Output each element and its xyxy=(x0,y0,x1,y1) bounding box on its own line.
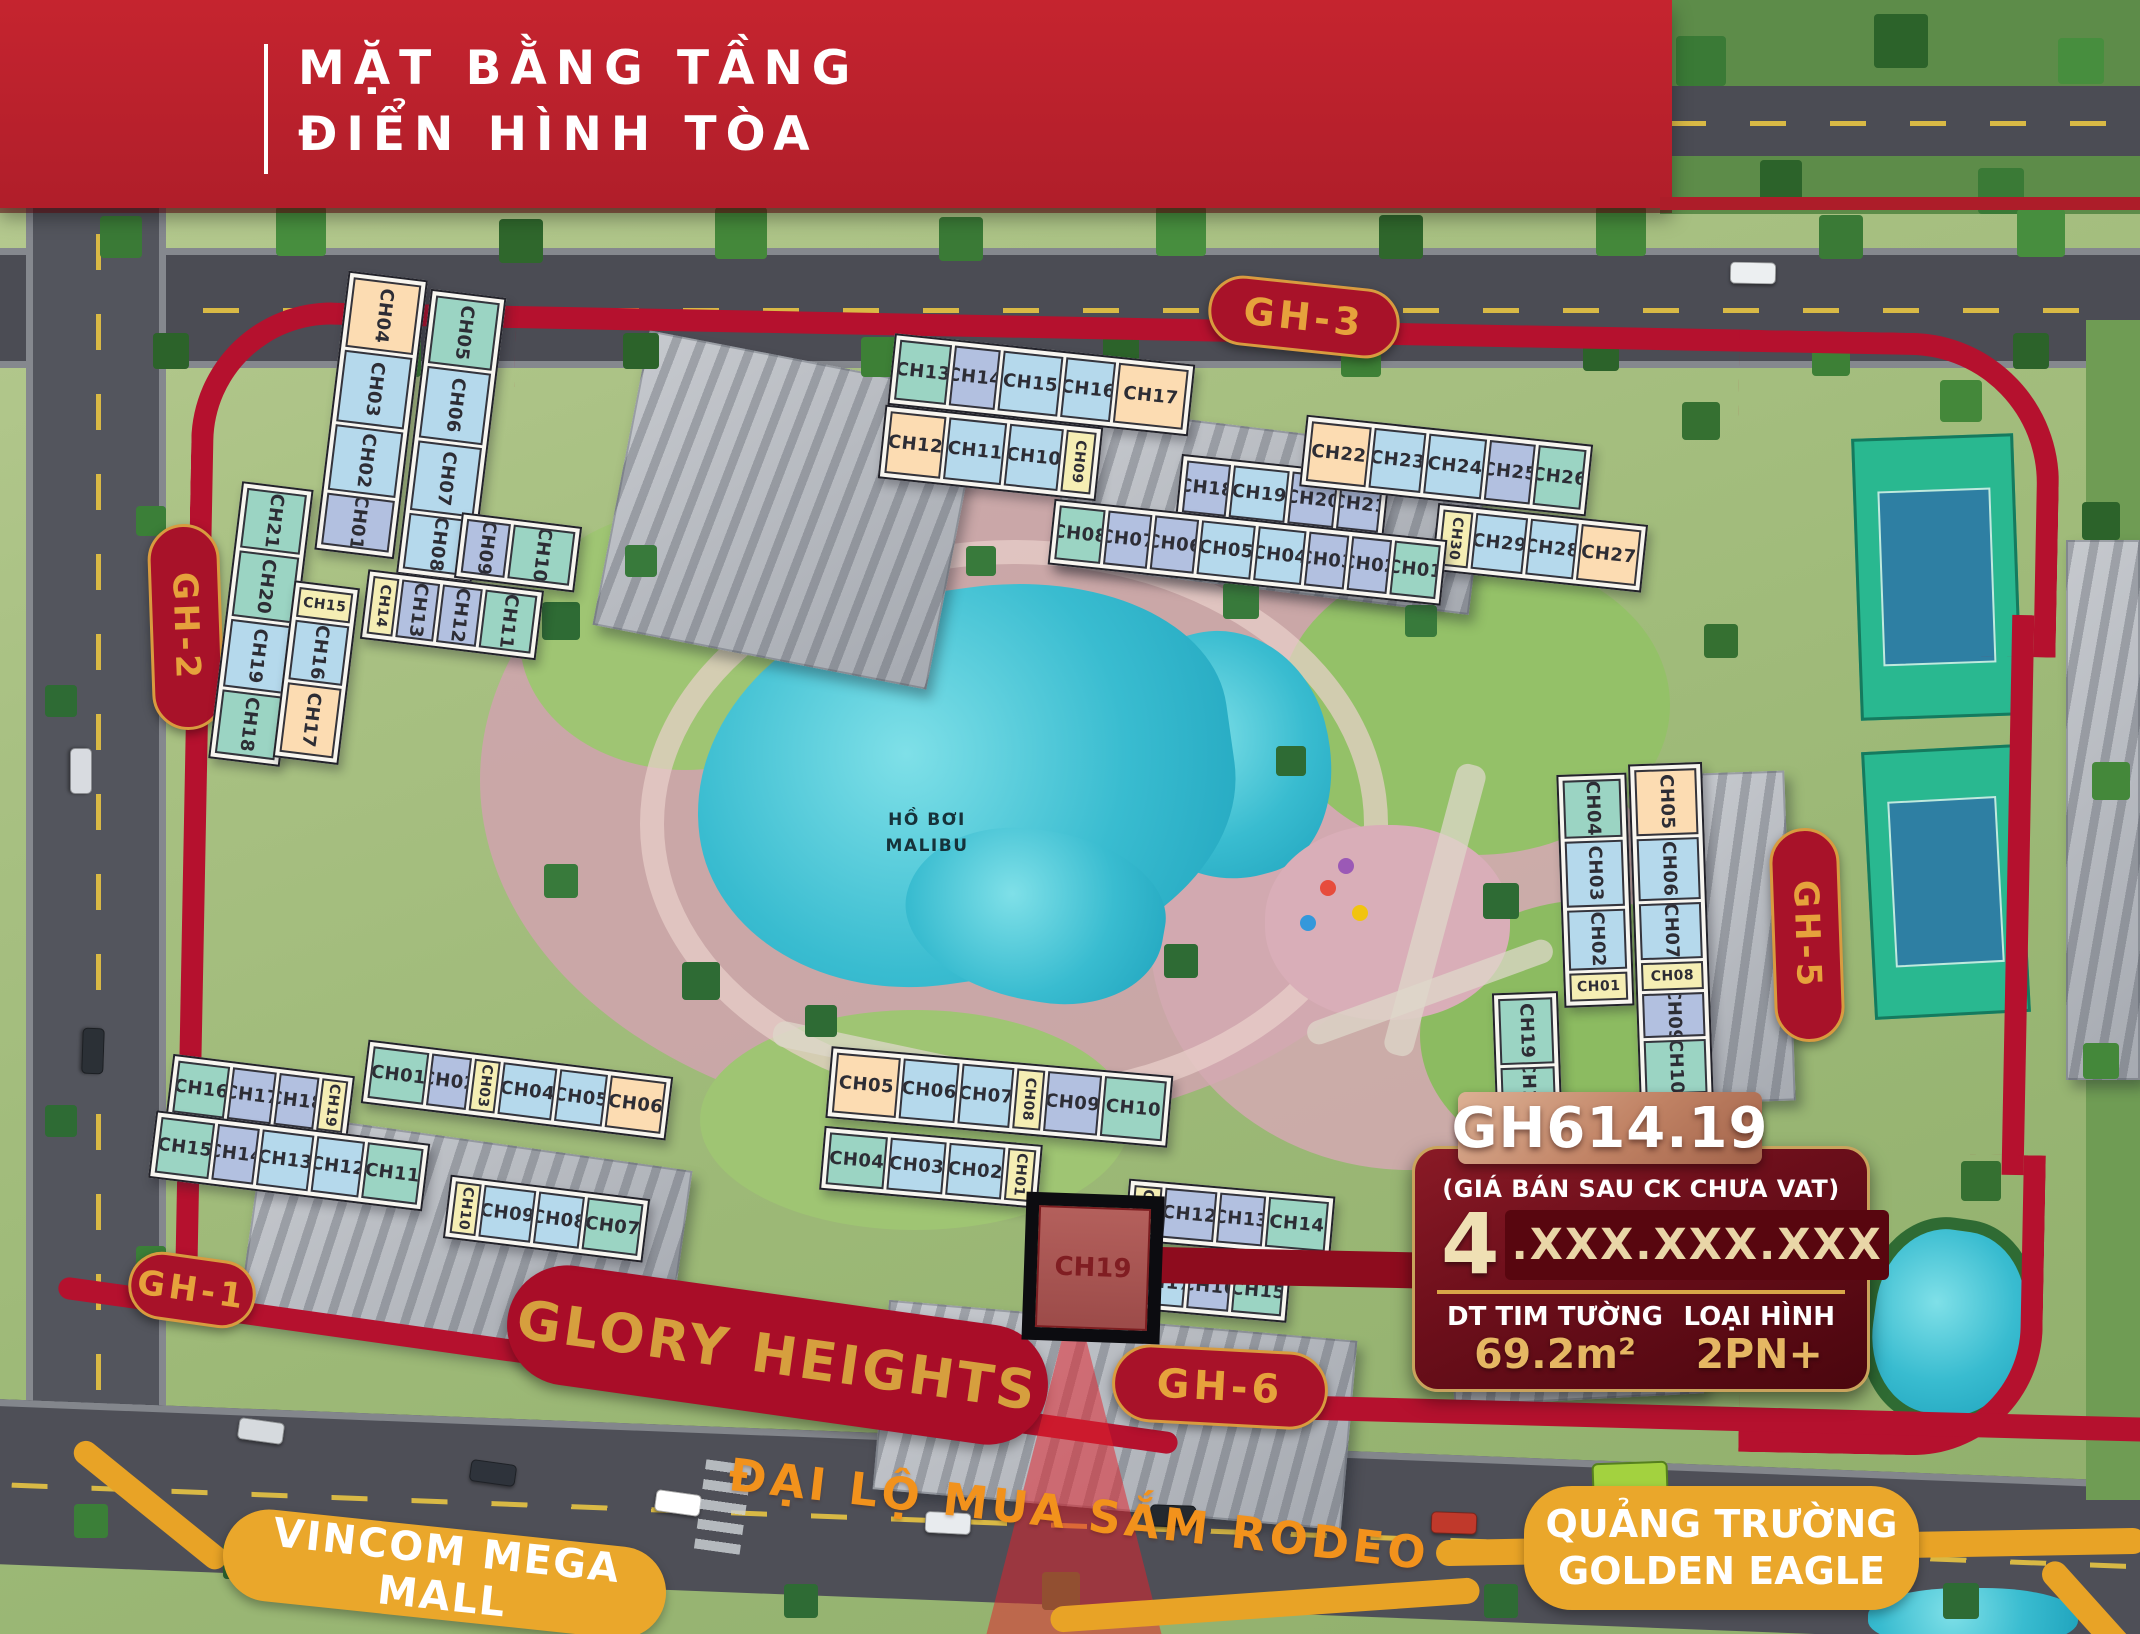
area-spec: DT TIM TƯỜNG 69.2m² xyxy=(1447,1302,1663,1377)
unit-CH23[interactable]: CH23 xyxy=(1368,428,1426,493)
unit-CH09[interactable]: CH09 xyxy=(1043,1071,1102,1135)
unit-CH08[interactable]: CH08 xyxy=(1054,505,1105,564)
unit-CH01[interactable]: CH01 xyxy=(367,1046,429,1104)
building-gh2: CH04CH03CH02CH01 CH05CH06CH07CH08 CH09CH… xyxy=(167,252,657,821)
unit-CH17[interactable]: CH17 xyxy=(279,682,341,758)
unit-CH12[interactable]: CH12 xyxy=(311,1136,365,1197)
unit-CH13[interactable]: CH13 xyxy=(395,579,440,641)
unit-CH06[interactable]: CH06 xyxy=(899,1058,960,1123)
route-corner-tr xyxy=(1734,330,2062,658)
unit-CH07[interactable]: CH07 xyxy=(1103,511,1152,569)
unit-CH10[interactable]: CH10 xyxy=(1644,1039,1708,1095)
unit-CH12[interactable]: CH12 xyxy=(884,411,946,479)
unit-CH18[interactable]: CH18 xyxy=(1182,460,1231,516)
unit-CH12[interactable]: CH12 xyxy=(436,584,483,646)
unit-CH10[interactable]: CH10 xyxy=(1100,1076,1167,1141)
unit-CH04[interactable]: CH04 xyxy=(345,277,421,355)
unit-CH28[interactable]: CH28 xyxy=(1525,519,1579,580)
unit-CH04[interactable]: CH04 xyxy=(1563,779,1623,839)
unit-CH08[interactable]: CH08 xyxy=(1012,1068,1045,1130)
unit-CH04[interactable]: CH04 xyxy=(826,1132,888,1189)
unit-CH01[interactable]: CH01 xyxy=(1389,541,1440,600)
banner-edge-strip xyxy=(1660,197,2140,210)
unit-CH16[interactable]: CH16 xyxy=(172,1061,230,1119)
unit-CH06[interactable]: CH06 xyxy=(1150,515,1199,573)
route-top xyxy=(470,305,1750,352)
unit-CH13[interactable]: CH13 xyxy=(256,1129,314,1191)
unit-CH05[interactable]: CH05 xyxy=(832,1053,901,1118)
unit-CH04[interactable]: CH04 xyxy=(1253,526,1306,585)
unit-CH02[interactable]: CH02 xyxy=(1567,909,1627,971)
unit-CH02[interactable]: CH02 xyxy=(328,424,404,498)
unit-CH19[interactable]: CH19 xyxy=(316,1078,348,1133)
unit-CH14[interactable]: CH14 xyxy=(949,346,1001,410)
type-spec: LOẠI HÌNH 2PN+ xyxy=(1683,1302,1835,1377)
unit-CH16[interactable]: CH16 xyxy=(288,620,349,686)
unit-CH29[interactable]: CH29 xyxy=(1471,513,1529,574)
unit-CH03[interactable]: CH03 xyxy=(1565,840,1625,908)
unit-CH16[interactable]: CH16 xyxy=(1060,357,1116,422)
unit-CH10[interactable]: CH10 xyxy=(507,525,575,586)
price-row: 4 .XXX.XXX.XXX xyxy=(1433,1209,1849,1280)
unit-CH12[interactable]: CH12 xyxy=(1161,1188,1217,1242)
title-divider xyxy=(264,44,268,174)
unit-CH07[interactable]: CH07 xyxy=(410,440,482,517)
price-lead-digit: 4 xyxy=(1441,1209,1499,1280)
unit-CH27[interactable]: CH27 xyxy=(1576,524,1642,586)
unit-CH10[interactable]: CH10 xyxy=(450,1181,482,1236)
unit-CH17[interactable]: CH17 xyxy=(1113,363,1189,430)
unit-CH03[interactable]: CH03 xyxy=(469,1059,501,1114)
highlighted-unit-ch19[interactable]: CH19 xyxy=(1021,1192,1164,1345)
price-card: (GIÁ BÁN SAU CK CHƯA VAT) 4 .XXX.XXX.XXX… xyxy=(1412,1146,1870,1392)
unit-CH25[interactable]: CH25 xyxy=(1484,440,1536,504)
page-title: MẶT BẰNG TẦNG ĐIỂN HÌNH TÒA xyxy=(298,36,859,168)
unit-CH06[interactable]: CH06 xyxy=(605,1075,667,1133)
title-banner: MẶT BẰNG TẦNG ĐIỂN HÌNH TÒA xyxy=(0,0,1672,208)
unit-CH19[interactable]: CH19 xyxy=(223,619,291,694)
unit-CH22[interactable]: CH22 xyxy=(1306,421,1372,487)
unit-CH03[interactable]: CH03 xyxy=(1304,532,1349,590)
pool-label: HỒ BƠIMALIBU xyxy=(862,808,992,859)
unit-CH05[interactable]: CH05 xyxy=(554,1069,608,1126)
unit-CH03[interactable]: CH03 xyxy=(886,1138,946,1195)
unit-CH14[interactable]: CH14 xyxy=(211,1124,260,1185)
unit-CH09[interactable]: CH09 xyxy=(478,1185,536,1243)
unit-CH09[interactable]: CH09 xyxy=(1642,992,1705,1038)
unit-CH06[interactable]: CH06 xyxy=(1637,837,1701,901)
unit-CH13[interactable]: CH13 xyxy=(1216,1193,1266,1247)
unit-CH05[interactable]: CH05 xyxy=(428,295,500,370)
unit-CH21[interactable]: CH21 xyxy=(240,488,307,555)
unit-CH17[interactable]: CH17 xyxy=(227,1067,277,1124)
unit-CH01[interactable]: CH01 xyxy=(321,493,395,553)
unit-CH07[interactable]: CH07 xyxy=(957,1064,1014,1128)
badge-gh5: GH-5 xyxy=(1768,827,1845,1043)
unit-CH11[interactable]: CH11 xyxy=(943,417,1007,485)
unit-CH02[interactable]: CH02 xyxy=(1347,536,1392,594)
unit-CH18[interactable]: CH18 xyxy=(273,1073,319,1129)
unit-CH20[interactable]: CH20 xyxy=(232,550,300,623)
unit-CH08[interactable]: CH08 xyxy=(533,1192,585,1249)
golden-eagle-square-badge: QUẢNG TRƯỜNGGOLDEN EAGLE xyxy=(1524,1486,1919,1610)
unit-CH01[interactable]: CH01 xyxy=(1569,972,1628,1002)
unit-CH14[interactable]: CH14 xyxy=(367,576,400,637)
unit-CH09[interactable]: CH09 xyxy=(1060,430,1096,495)
unit-code-header: GH614.19 xyxy=(1458,1092,1762,1164)
route-right xyxy=(2002,615,2035,1175)
unit-CH19[interactable]: CH19 xyxy=(1229,465,1290,523)
site-plan-canvas: GLORY HEIGHTS GH-1 GH-2 GH-3 GH-5 GH-6 C… xyxy=(0,0,2140,1634)
unit-CH10[interactable]: CH10 xyxy=(1004,424,1064,491)
unit-CH26[interactable]: CH26 xyxy=(1533,445,1587,510)
unit-CH11[interactable]: CH11 xyxy=(361,1142,423,1204)
unit-CH04[interactable]: CH04 xyxy=(497,1062,557,1120)
unit-CH05[interactable]: CH05 xyxy=(1634,768,1698,836)
unit-CH24[interactable]: CH24 xyxy=(1423,434,1487,500)
unit-CH05[interactable]: CH05 xyxy=(1196,520,1255,579)
unit-CH14[interactable]: CH14 xyxy=(1265,1197,1329,1252)
unit-CH06[interactable]: CH06 xyxy=(419,366,491,445)
unit-CH03[interactable]: CH03 xyxy=(336,350,412,430)
unit-CH07[interactable]: CH07 xyxy=(582,1198,644,1256)
unit-CH02[interactable]: CH02 xyxy=(426,1053,472,1109)
unit-CH09[interactable]: CH09 xyxy=(461,519,511,578)
unit-CH15[interactable]: CH15 xyxy=(997,351,1063,417)
price-masked-box: .XXX.XXX.XXX xyxy=(1505,1210,1888,1280)
unit-CH11[interactable]: CH11 xyxy=(479,590,538,654)
unit-CH13[interactable]: CH13 xyxy=(894,340,952,405)
unit-CH08[interactable]: CH08 xyxy=(1641,961,1704,991)
unit-CH07[interactable]: CH07 xyxy=(1639,902,1703,960)
unit-CH19[interactable]: CH19 xyxy=(1498,997,1554,1065)
unit-CH15[interactable]: CH15 xyxy=(155,1117,215,1179)
unit-CH15[interactable]: CH15 xyxy=(296,587,353,623)
unit-CH02[interactable]: CH02 xyxy=(945,1143,1005,1200)
unit-CH18[interactable]: CH18 xyxy=(215,689,282,760)
